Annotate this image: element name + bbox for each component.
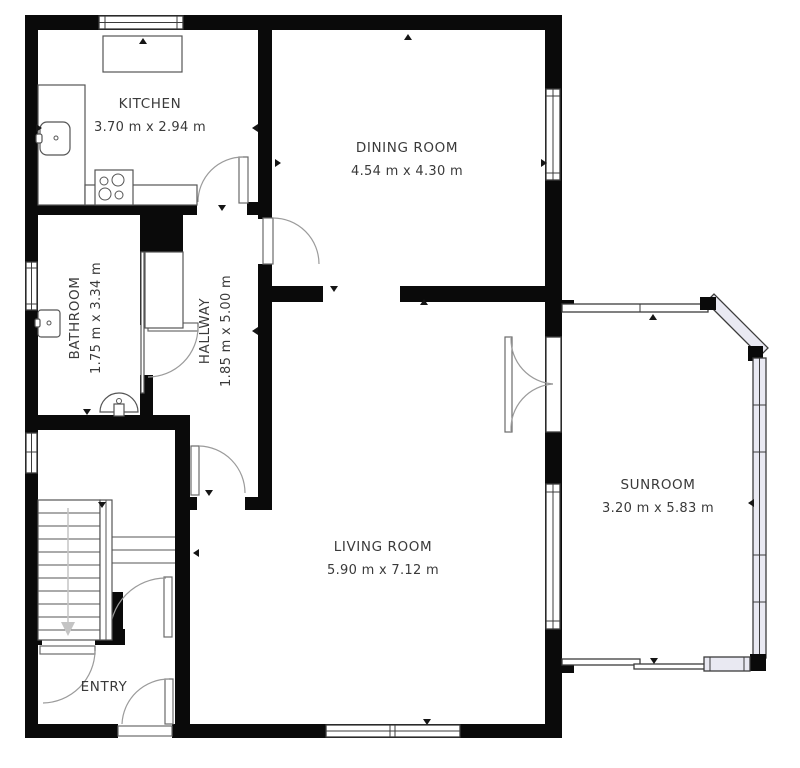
room-dining: DINING ROOM 4.54 m x 4.30 m	[351, 140, 463, 179]
sunroom-wall-top	[562, 304, 708, 312]
hallway-dining-door[interactable]	[263, 218, 319, 264]
sunroom-sliding-door-b[interactable]	[634, 664, 706, 669]
room-bathroom: BATHROOM 1.75 m x 3.34 m	[67, 262, 104, 374]
sunroom-window-right	[753, 358, 766, 658]
sunroom-corner-post-top	[700, 297, 716, 310]
sunroom-window-bottom	[704, 657, 750, 671]
bathroom-fixtures	[35, 252, 183, 416]
floor-plan: KITCHEN 3.70 m x 2.94 m DINING ROOM 4.54…	[0, 0, 800, 768]
window-kitchen-top	[99, 16, 183, 29]
window-living-sunroom	[546, 484, 560, 629]
window-living-bottom	[326, 725, 460, 737]
living-room-label: LIVING ROOM	[334, 539, 432, 555]
room-entry: ENTRY	[81, 679, 128, 695]
stove	[95, 170, 133, 205]
wall-entry-living	[175, 416, 190, 738]
hallway-label: HALLWAY	[197, 298, 213, 365]
sunroom-sliding-door-a[interactable]	[562, 659, 640, 665]
window-bathroom-left	[26, 262, 37, 310]
kitchen-dims: 3.70 m x 2.94 m	[94, 120, 206, 135]
hallway-landing-door[interactable]	[191, 446, 245, 495]
doors	[40, 157, 553, 736]
entry-label: ENTRY	[81, 679, 128, 695]
window-landing-left	[26, 433, 37, 473]
room-hallway: HALLWAY 1.85 m x 5.00 m	[197, 275, 234, 387]
stair-winders	[112, 537, 175, 563]
living-room-dims: 5.90 m x 7.12 m	[327, 563, 439, 578]
wall-openings	[42, 202, 561, 738]
toilet	[100, 393, 138, 416]
hallway-dims: 1.85 m x 5.00 m	[219, 275, 234, 387]
room-living: LIVING ROOM 5.90 m x 7.12 m	[327, 539, 439, 578]
wall-dining-living-stub	[272, 286, 323, 302]
staircase[interactable]	[38, 500, 175, 640]
bathroom-sink	[35, 310, 60, 337]
wall-kitchen-dining	[258, 15, 272, 215]
wall-exterior-bottom	[25, 724, 562, 738]
dining-room-dims: 4.54 m x 4.30 m	[351, 164, 463, 179]
wall-bathroom-bottom	[25, 415, 190, 430]
sunroom-corner-post-bottom	[750, 654, 766, 671]
room-sunroom: SUNROOM 3.20 m x 5.83 m	[602, 477, 714, 516]
kitchen-door[interactable]	[198, 157, 248, 203]
floor-plan-svg: KITCHEN 3.70 m x 2.94 m DINING ROOM 4.54…	[0, 0, 800, 768]
bathroom-door[interactable]	[148, 323, 198, 377]
kitchen-sink	[36, 122, 70, 155]
hallway-door-opening	[197, 497, 245, 510]
sunroom-dims: 3.20 m x 5.83 m	[602, 501, 714, 516]
bathroom-dims: 1.75 m x 3.34 m	[89, 262, 104, 374]
kitchen-label: KITCHEN	[119, 96, 182, 112]
sunroom-label: SUNROOM	[620, 477, 695, 493]
dining-room-label: DINING ROOM	[356, 140, 458, 156]
room-kitchen: KITCHEN 3.70 m x 2.94 m	[94, 96, 206, 135]
window-dining-right	[546, 89, 560, 180]
bathroom-label: BATHROOM	[67, 277, 83, 360]
